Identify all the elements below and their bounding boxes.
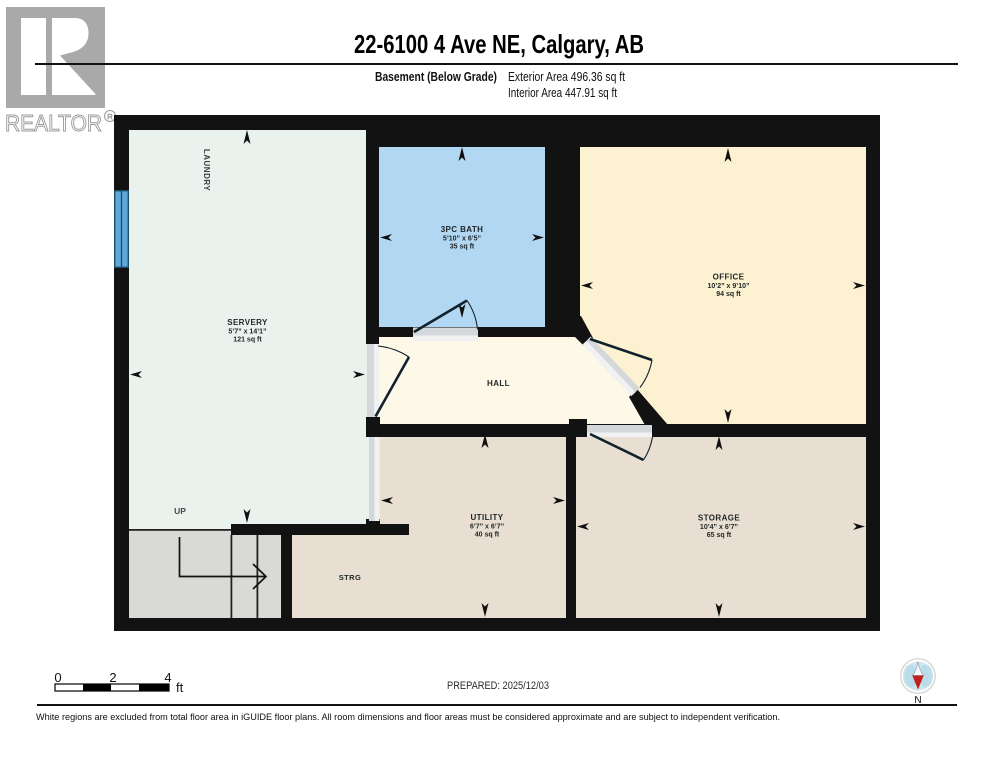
svg-text:2: 2	[109, 670, 116, 685]
svg-text:40 sq ft: 40 sq ft	[475, 531, 500, 538]
svg-text:Basement (Below Grade): Basement (Below Grade)	[375, 70, 497, 84]
svg-text:121 sq ft: 121 sq ft	[233, 336, 262, 343]
svg-text:UTILITY: UTILITY	[470, 513, 503, 522]
svg-text:5’10” x 6’5”: 5’10” x 6’5”	[443, 235, 481, 242]
svg-text:Interior Area 447.91 sq ft: Interior Area 447.91 sq ft	[508, 86, 617, 100]
svg-text:3PC BATH: 3PC BATH	[441, 225, 484, 234]
svg-text:4: 4	[164, 670, 171, 685]
svg-text:94 sq ft: 94 sq ft	[716, 291, 741, 298]
svg-text:UP: UP	[174, 506, 186, 516]
svg-text:REALTOR: REALTOR	[5, 110, 102, 136]
svg-text:STRG: STRG	[339, 573, 361, 582]
svg-text:STORAGE: STORAGE	[698, 514, 740, 523]
svg-text:PREPARED: 2025/12/03: PREPARED: 2025/12/03	[447, 680, 549, 692]
svg-text:10’2” x 9’10”: 10’2” x 9’10”	[707, 283, 749, 290]
svg-text:22-6100 4 Ave NE, Calgary, AB: 22-6100 4 Ave NE, Calgary, AB	[354, 29, 644, 59]
svg-text:10’4” x 6’7”: 10’4” x 6’7”	[700, 524, 738, 531]
svg-text:35 sq ft: 35 sq ft	[450, 243, 475, 250]
svg-text:ft: ft	[176, 680, 184, 695]
svg-text:LAUNDRY: LAUNDRY	[202, 149, 211, 191]
svg-text:HALL: HALL	[487, 379, 510, 388]
svg-text:OFFICE: OFFICE	[713, 273, 745, 282]
svg-text:6’7” x 6’7”: 6’7” x 6’7”	[470, 523, 504, 530]
svg-text:5’7” x 14’1”: 5’7” x 14’1”	[228, 328, 266, 335]
svg-text:R: R	[107, 112, 113, 121]
svg-text:65 sq ft: 65 sq ft	[707, 532, 732, 539]
svg-text:White regions are excluded fro: White regions are excluded from total fl…	[36, 712, 780, 723]
svg-text:SERVERY: SERVERY	[227, 318, 268, 327]
svg-text:0: 0	[54, 670, 61, 685]
svg-text:Exterior Area 496.36 sq ft: Exterior Area 496.36 sq ft	[508, 70, 625, 84]
